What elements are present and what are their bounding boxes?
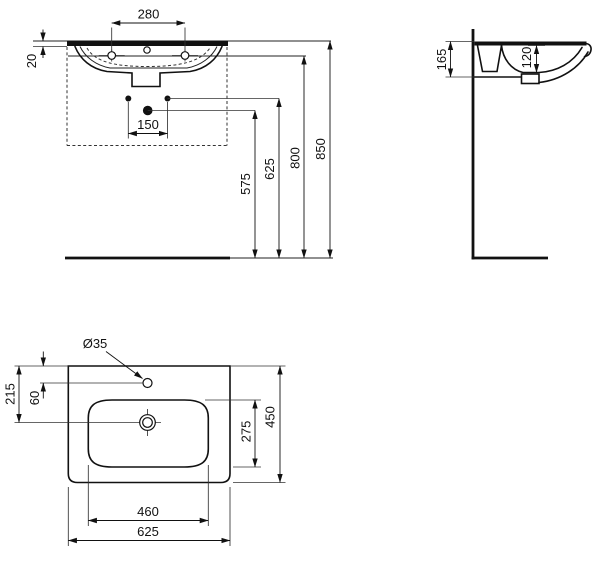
- dim-label-575: 575: [238, 173, 253, 195]
- dim-800: 800: [288, 56, 305, 258]
- dim-label-625-width: 625: [137, 524, 159, 539]
- dim-120: 120: [519, 46, 545, 73]
- dim-460: 460: [88, 465, 208, 526]
- dim-label-280: 280: [138, 7, 160, 22]
- bowl-section: [502, 46, 583, 73]
- hole-circle: [181, 52, 189, 60]
- technical-drawing: 280 20 150 575 625 800: [0, 0, 600, 564]
- tap-hole: [143, 379, 152, 388]
- dim-575: 575: [238, 111, 255, 259]
- dim-label-20: 20: [24, 54, 39, 68]
- dim-label-150: 150: [137, 117, 159, 132]
- dim-label-60: 60: [27, 391, 42, 405]
- rim-section: [475, 42, 587, 46]
- supply-dot-left: [125, 96, 131, 102]
- dim-60: 60: [27, 352, 43, 406]
- dim-label-625-height: 625: [262, 158, 277, 180]
- drawing-canvas: 280 20 150 575 625 800: [0, 0, 600, 564]
- dim-label-850: 850: [313, 138, 328, 160]
- dim-label-275: 275: [239, 421, 254, 443]
- tap-deck-section: [478, 46, 502, 72]
- dim-label-165: 165: [434, 49, 449, 71]
- fixing-hole-left: [99, 50, 125, 62]
- hole-circle: [108, 52, 116, 60]
- basin-rim: [67, 41, 228, 47]
- basin-outline: [88, 400, 208, 467]
- side-view: 165 120: [434, 29, 591, 259]
- dim-850: 850: [313, 41, 330, 258]
- dim-20: 20: [24, 30, 43, 69]
- waste-fitting: [522, 74, 540, 84]
- dim-625-height: 625: [262, 99, 279, 259]
- dim-label-460: 460: [137, 504, 159, 519]
- dim-label-tap-diameter: Ø35: [83, 336, 108, 351]
- dim-215: 215: [3, 366, 20, 423]
- overflow-hole: [144, 47, 150, 53]
- plan-view: Ø35 215 60 275: [3, 336, 286, 546]
- dim-label-215: 215: [3, 383, 18, 405]
- dim-275: 275: [205, 400, 261, 467]
- drain-circle-inner: [143, 418, 153, 428]
- tap-hole-leader: [106, 352, 143, 379]
- front-view: 280 20 150 575 625 800: [24, 7, 333, 259]
- underside-curve: [539, 52, 588, 83]
- dim-label-120: 120: [519, 47, 534, 69]
- dim-165: 165: [434, 42, 475, 78]
- dim-label-800: 800: [288, 147, 303, 169]
- dim-label-450: 450: [263, 406, 278, 428]
